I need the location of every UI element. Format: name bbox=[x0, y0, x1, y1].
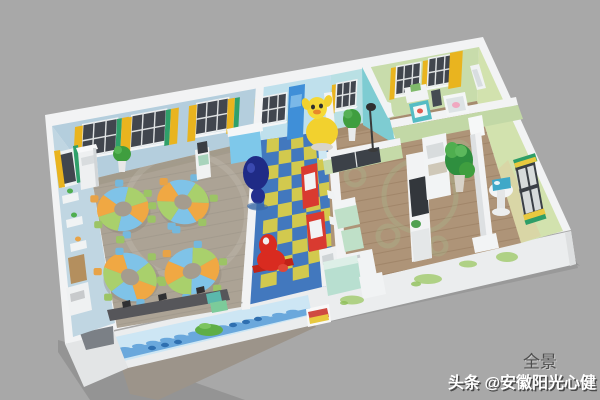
svg-text:头条 @安徽阳光心健: 头条 @安徽阳光心健 bbox=[448, 373, 596, 392]
svg-text:全景: 全景 bbox=[523, 353, 557, 372]
